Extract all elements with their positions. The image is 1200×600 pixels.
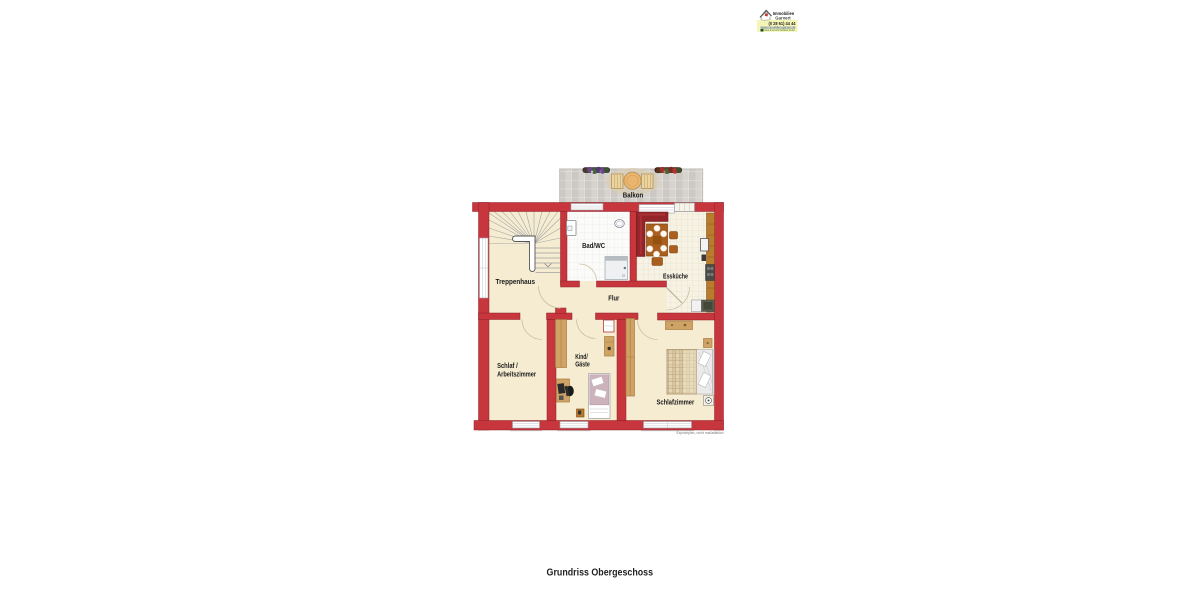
svg-text:Arbeitszimmer: Arbeitszimmer	[497, 369, 536, 378]
svg-text:Flur: Flur	[608, 294, 619, 303]
svg-text:Schlafzimmer: Schlafzimmer	[657, 397, 695, 406]
svg-text:Gäste: Gäste	[575, 359, 590, 368]
svg-text:Balkon: Balkon	[623, 190, 644, 199]
svg-text:Treppenhaus: Treppenhaus	[496, 277, 536, 286]
svg-text:Bad/WC: Bad/WC	[582, 241, 606, 250]
svg-text:Essküche: Essküche	[663, 272, 688, 281]
svg-text:Grundriss Obergeschoss: Grundriss Obergeschoss	[547, 568, 654, 579]
svg-text:Haus & Grund Immobilien GmbH: Haus & Grund Immobilien GmbH	[765, 28, 795, 32]
svg-text:Exposéplan, nicht maßstäblich: Exposéplan, nicht maßstäblich	[677, 431, 724, 435]
svg-text:Garvert: Garvert	[775, 15, 791, 20]
